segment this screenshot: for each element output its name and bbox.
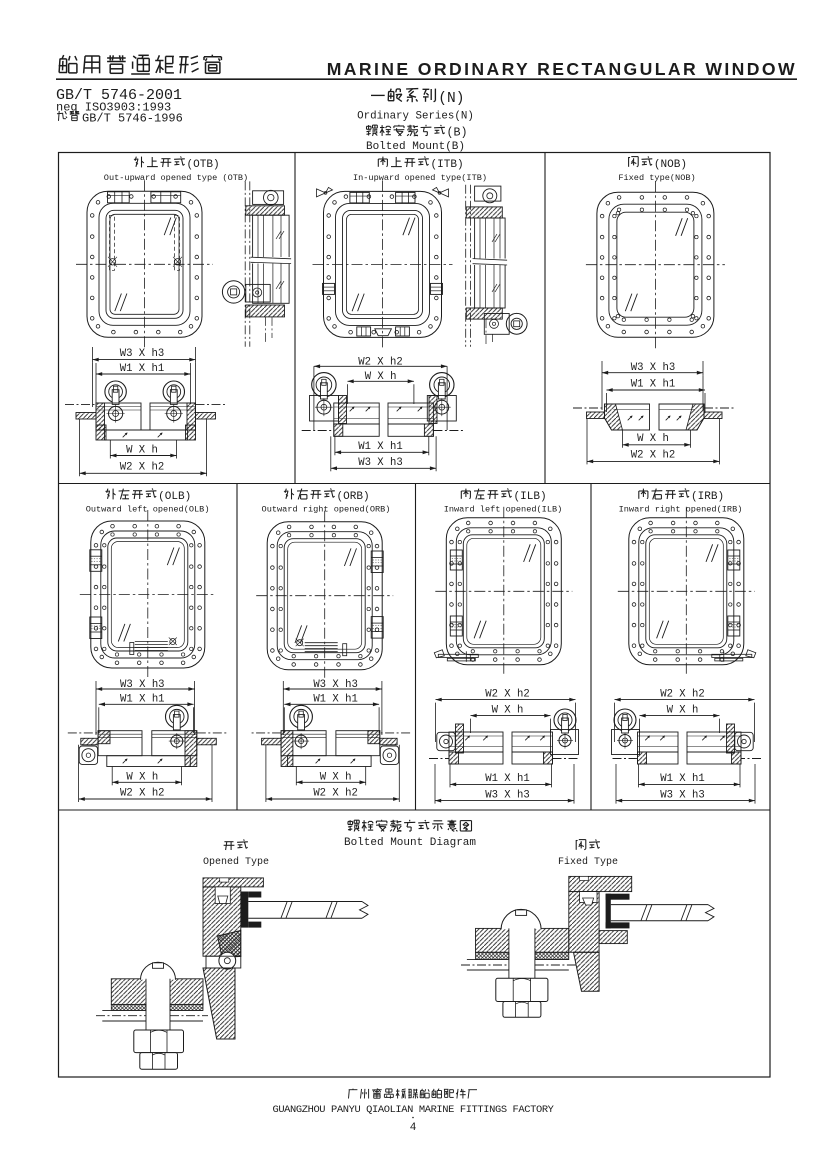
svg-text:W X h: W X h [637,433,669,445]
svg-text:GB/T 5746-1996: GB/T 5746-1996 [82,112,183,126]
svg-text:(ITB): (ITB) [431,159,464,171]
svg-text:W1 X h1: W1 X h1 [358,441,403,453]
svg-text:(NOB): (NOB) [654,159,687,171]
svg-text:W X h: W X h [320,772,352,784]
svg-text:W1 X h1: W1 X h1 [660,773,705,785]
svg-text:GUANGZHOU PANYU QIAOLIAN MARIN: GUANGZHOU PANYU QIAOLIAN MARINE FITTINGS… [272,1104,554,1116]
svg-text:W2 X h2: W2 X h2 [485,689,530,701]
svg-text:Opened Type: Opened Type [203,856,269,868]
svg-text:(IRB): (IRB) [691,491,724,503]
svg-text:W2 X h2: W2 X h2 [631,450,676,462]
svg-text:In-upward opened type(ITB): In-upward opened type(ITB) [353,173,487,183]
svg-text:W3 X h3: W3 X h3 [660,789,705,801]
svg-text:(B): (B) [447,126,468,140]
svg-text:(OLB): (OLB) [158,491,191,503]
svg-text:W3 X h3: W3 X h3 [358,457,403,469]
svg-text:Bolted Mount(B): Bolted Mount(B) [366,141,465,153]
svg-text:W1 X h1: W1 X h1 [631,379,676,391]
svg-text:W1 X h1: W1 X h1 [120,693,165,705]
svg-text:W2 X h2: W2 X h2 [313,787,358,799]
svg-text:W2 X h2: W2 X h2 [660,689,705,701]
svg-text:W X h: W X h [126,445,158,457]
svg-text:Fixed Type: Fixed Type [558,856,618,868]
svg-text:Out-upward opened type (OTB): Out-upward opened type (OTB) [104,173,248,183]
svg-text:W2 X h2: W2 X h2 [120,461,165,473]
svg-text:Fixed type(NOB): Fixed type(NOB) [618,173,695,183]
svg-text:Outward right opened(ORB): Outward right opened(ORB) [262,505,391,515]
svg-text:W X h: W X h [126,772,158,784]
svg-text:Bolted Mount Diagram: Bolted Mount Diagram [344,837,476,849]
svg-text:(ILB): (ILB) [514,491,547,503]
svg-text:W3 X h3: W3 X h3 [485,789,530,801]
svg-text:4: 4 [410,1122,417,1134]
svg-text:(N): (N) [438,91,464,107]
svg-text:Inward left opened(ILB): Inward left opened(ILB) [444,505,563,515]
svg-text:W1 X h1: W1 X h1 [120,363,165,375]
svg-text:(ORB): (ORB) [337,491,370,503]
svg-text:Ordinary Series(N): Ordinary Series(N) [357,111,474,123]
svg-text:W X h: W X h [667,705,699,717]
svg-text:W3 X h3: W3 X h3 [120,348,165,360]
svg-text:W2 X h2: W2 X h2 [120,787,165,799]
svg-text:Inward right opened(IRB): Inward right opened(IRB) [619,505,743,515]
svg-text:W X h: W X h [492,705,524,717]
svg-text:(OTB): (OTB) [187,159,220,171]
svg-text:W1 X h1: W1 X h1 [485,773,530,785]
svg-text:W3 X h3: W3 X h3 [631,362,676,374]
svg-text:W1 X h1: W1 X h1 [313,693,358,705]
svg-text:MARINE ORDINARY RECTANGULAR WI: MARINE ORDINARY RECTANGULAR WINDOW [327,59,797,79]
